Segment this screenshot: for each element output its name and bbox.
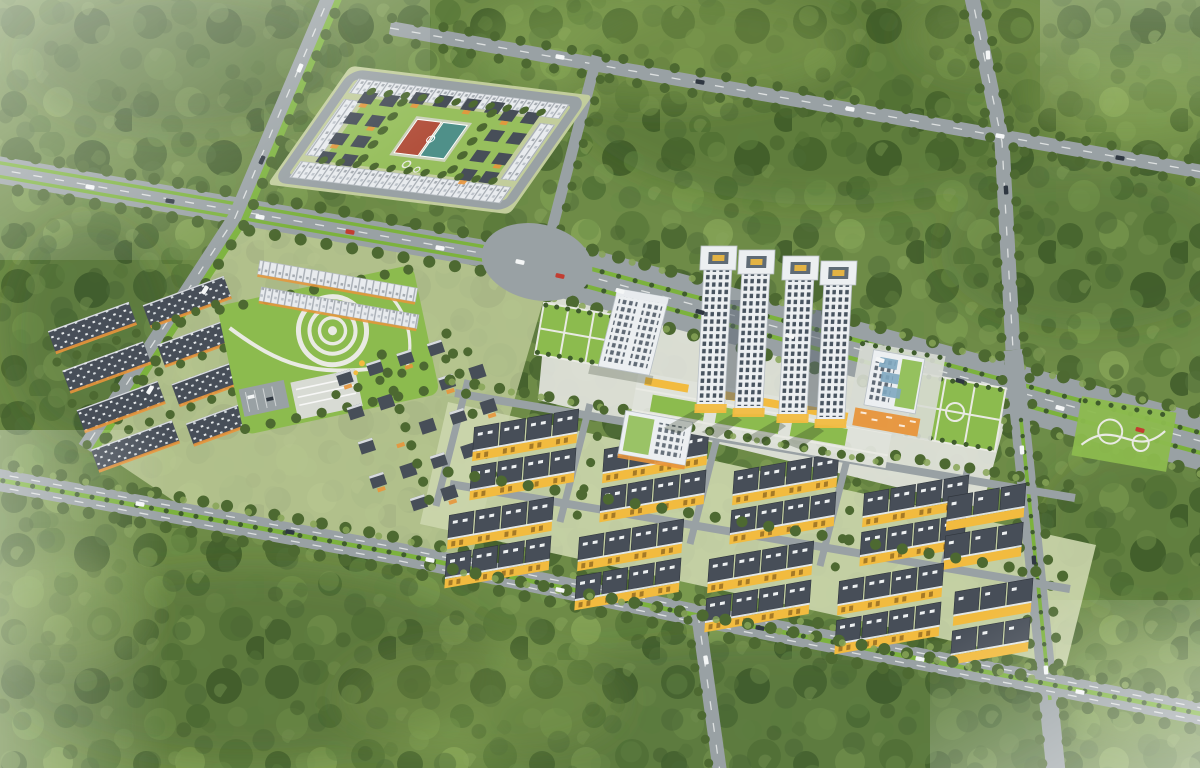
aerial-development-rendering bbox=[0, 0, 1200, 768]
east-office-tower bbox=[846, 341, 946, 441]
scene bbox=[0, 0, 1200, 768]
